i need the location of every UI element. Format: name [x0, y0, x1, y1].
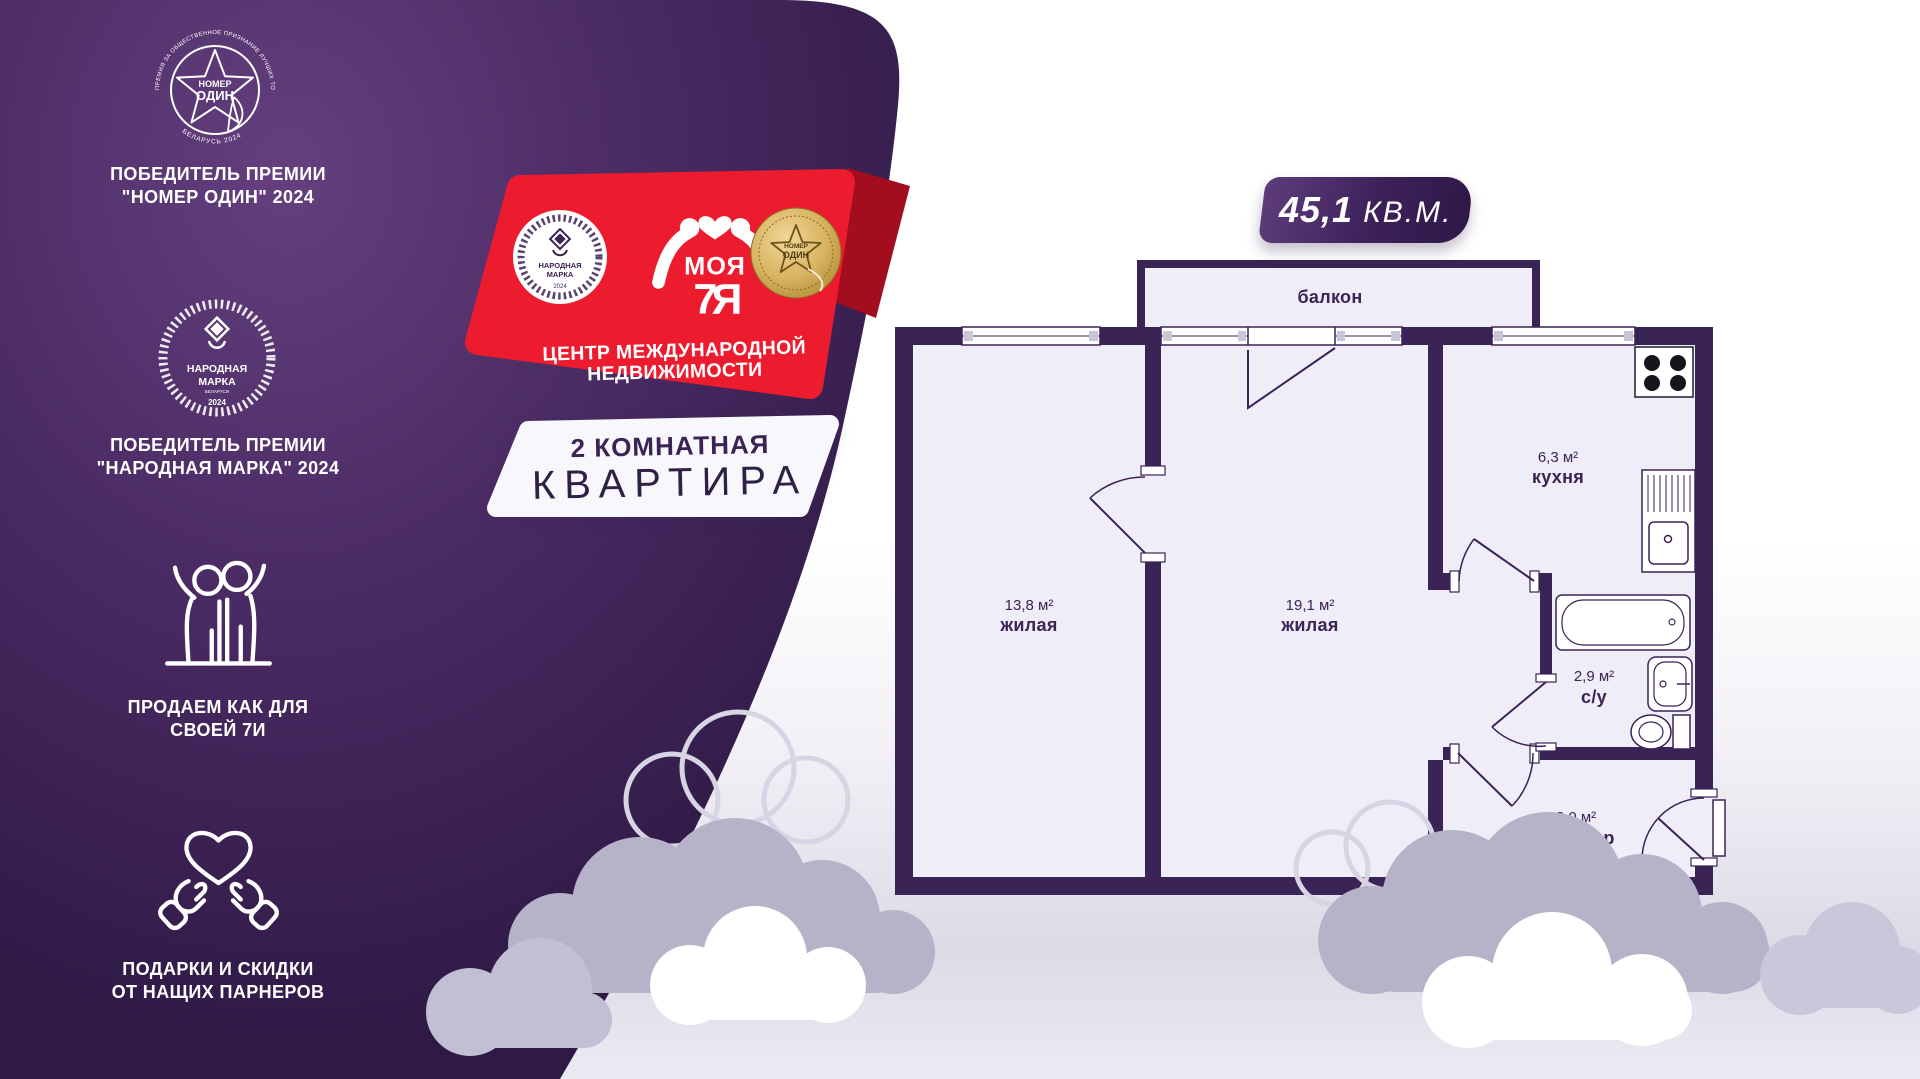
- window-room1: [962, 327, 1100, 345]
- poster: { "sidebar": { "award1": { "ring_top": "…: [0, 0, 1920, 1079]
- medal-line2: ОДИН: [783, 250, 809, 260]
- award1-caption-line2: "НОМЕР ОДИН" 2024: [38, 186, 398, 209]
- family-caption-line2: СВОЕЙ 7И: [38, 719, 398, 742]
- room2-area: 19,1 м²: [1286, 597, 1335, 614]
- white-badge-year: 2024: [553, 284, 567, 290]
- award2-medallion-line2: МАРКА: [198, 376, 236, 388]
- award2-medallion-sub: БЕЛАРУСИ: [205, 389, 229, 394]
- gifts-caption-line1: ПОДАРКИ И СКИДКИ: [38, 958, 398, 981]
- gifts-caption-line2: ОТ НАЩИХ ПАРНЕРОВ: [38, 981, 398, 1004]
- logo-monogram: 7Я: [694, 276, 740, 324]
- award2-medallion-year: 2024: [208, 398, 226, 407]
- folk-mark-icon: [206, 318, 229, 348]
- room2-name: жилая: [1280, 615, 1338, 635]
- award1-medallion-line2: ОДИН: [196, 88, 234, 103]
- family-caption-line1: ПРОДАЕМ КАК ДЛЯ: [38, 696, 398, 719]
- award2-caption-line1: ПОБЕДИТЕЛЬ ПРЕМИИ: [38, 434, 398, 457]
- gold-medal: НОМЕР ОДИН: [750, 207, 842, 299]
- white-badge-line1: НАРОДНАЯ: [538, 261, 581, 270]
- award1-caption-line1: ПОБЕДИТЕЛЬ ПРЕМИИ: [38, 163, 398, 186]
- stove-icon: [1635, 347, 1693, 397]
- room1-name: жилая: [999, 615, 1057, 635]
- kitchen-sink-icon: [1642, 470, 1695, 572]
- folk-mark-white-badge: НАРОДНАЯ МАРКА 2024: [512, 209, 608, 305]
- corridor-area: 3,0 м²: [1556, 809, 1596, 826]
- purple-panel: [0, 0, 899, 1079]
- floorplan: балкон: [890, 250, 1740, 900]
- award2-caption: ПОБЕДИТЕЛЬ ПРЕМИИ "НАРОДНАЯ МАРКА" 2024: [38, 434, 398, 480]
- family-caption: ПРОДАЕМ КАК ДЛЯ СВОЕЙ 7И: [38, 696, 398, 742]
- toilet-icon: [1631, 715, 1690, 749]
- area-badge: 45,1КВ.М.: [1258, 177, 1474, 243]
- award2-caption-line2: "НАРОДНАЯ МАРКА" 2024: [38, 457, 398, 480]
- balcony-label: балкон: [1297, 287, 1362, 307]
- listing-type-line2: КВАРТИРА: [505, 458, 836, 510]
- bathtub-icon: [1556, 595, 1690, 650]
- hands-heart-icon: [146, 820, 291, 948]
- corridor-name: коридор: [1537, 828, 1614, 848]
- white-badge-line2: МАРКА: [547, 270, 574, 279]
- award1-caption: ПОБЕДИТЕЛЬ ПРЕМИИ "НОМЕР ОДИН" 2024: [38, 163, 398, 209]
- area-value: 45,1: [1279, 189, 1353, 230]
- award2-badge: НАРОДНАЯ МАРКА БЕЛАРУСИ 2024: [152, 293, 282, 423]
- kitchen-area: 6,3 м²: [1538, 449, 1578, 466]
- area-unit: КВ.М.: [1363, 196, 1452, 229]
- award2-medallion-line1: НАРОДНАЯ: [187, 363, 247, 375]
- gifts-caption: ПОДАРКИ И СКИДКИ ОТ НАЩИХ ПАРНЕРОВ: [38, 958, 398, 1004]
- bathroom-name: с/у: [1581, 687, 1607, 707]
- family-icon: [146, 553, 291, 683]
- medal-line1: НОМЕР: [784, 243, 809, 250]
- bathroom-area: 2,9 м²: [1574, 668, 1614, 685]
- kitchen-name: кухня: [1532, 467, 1584, 487]
- award1-badge: НОМЕР ОДИН ПРЕМИЯ ЗА ОБЩЕСТВЕННОЕ ПРИЗНА…: [150, 25, 280, 155]
- room1-area: 13,8 м²: [1005, 597, 1054, 614]
- bath-sink-icon: [1648, 657, 1692, 711]
- balcony: балкон: [1137, 260, 1540, 332]
- window-kitchen: [1492, 327, 1635, 345]
